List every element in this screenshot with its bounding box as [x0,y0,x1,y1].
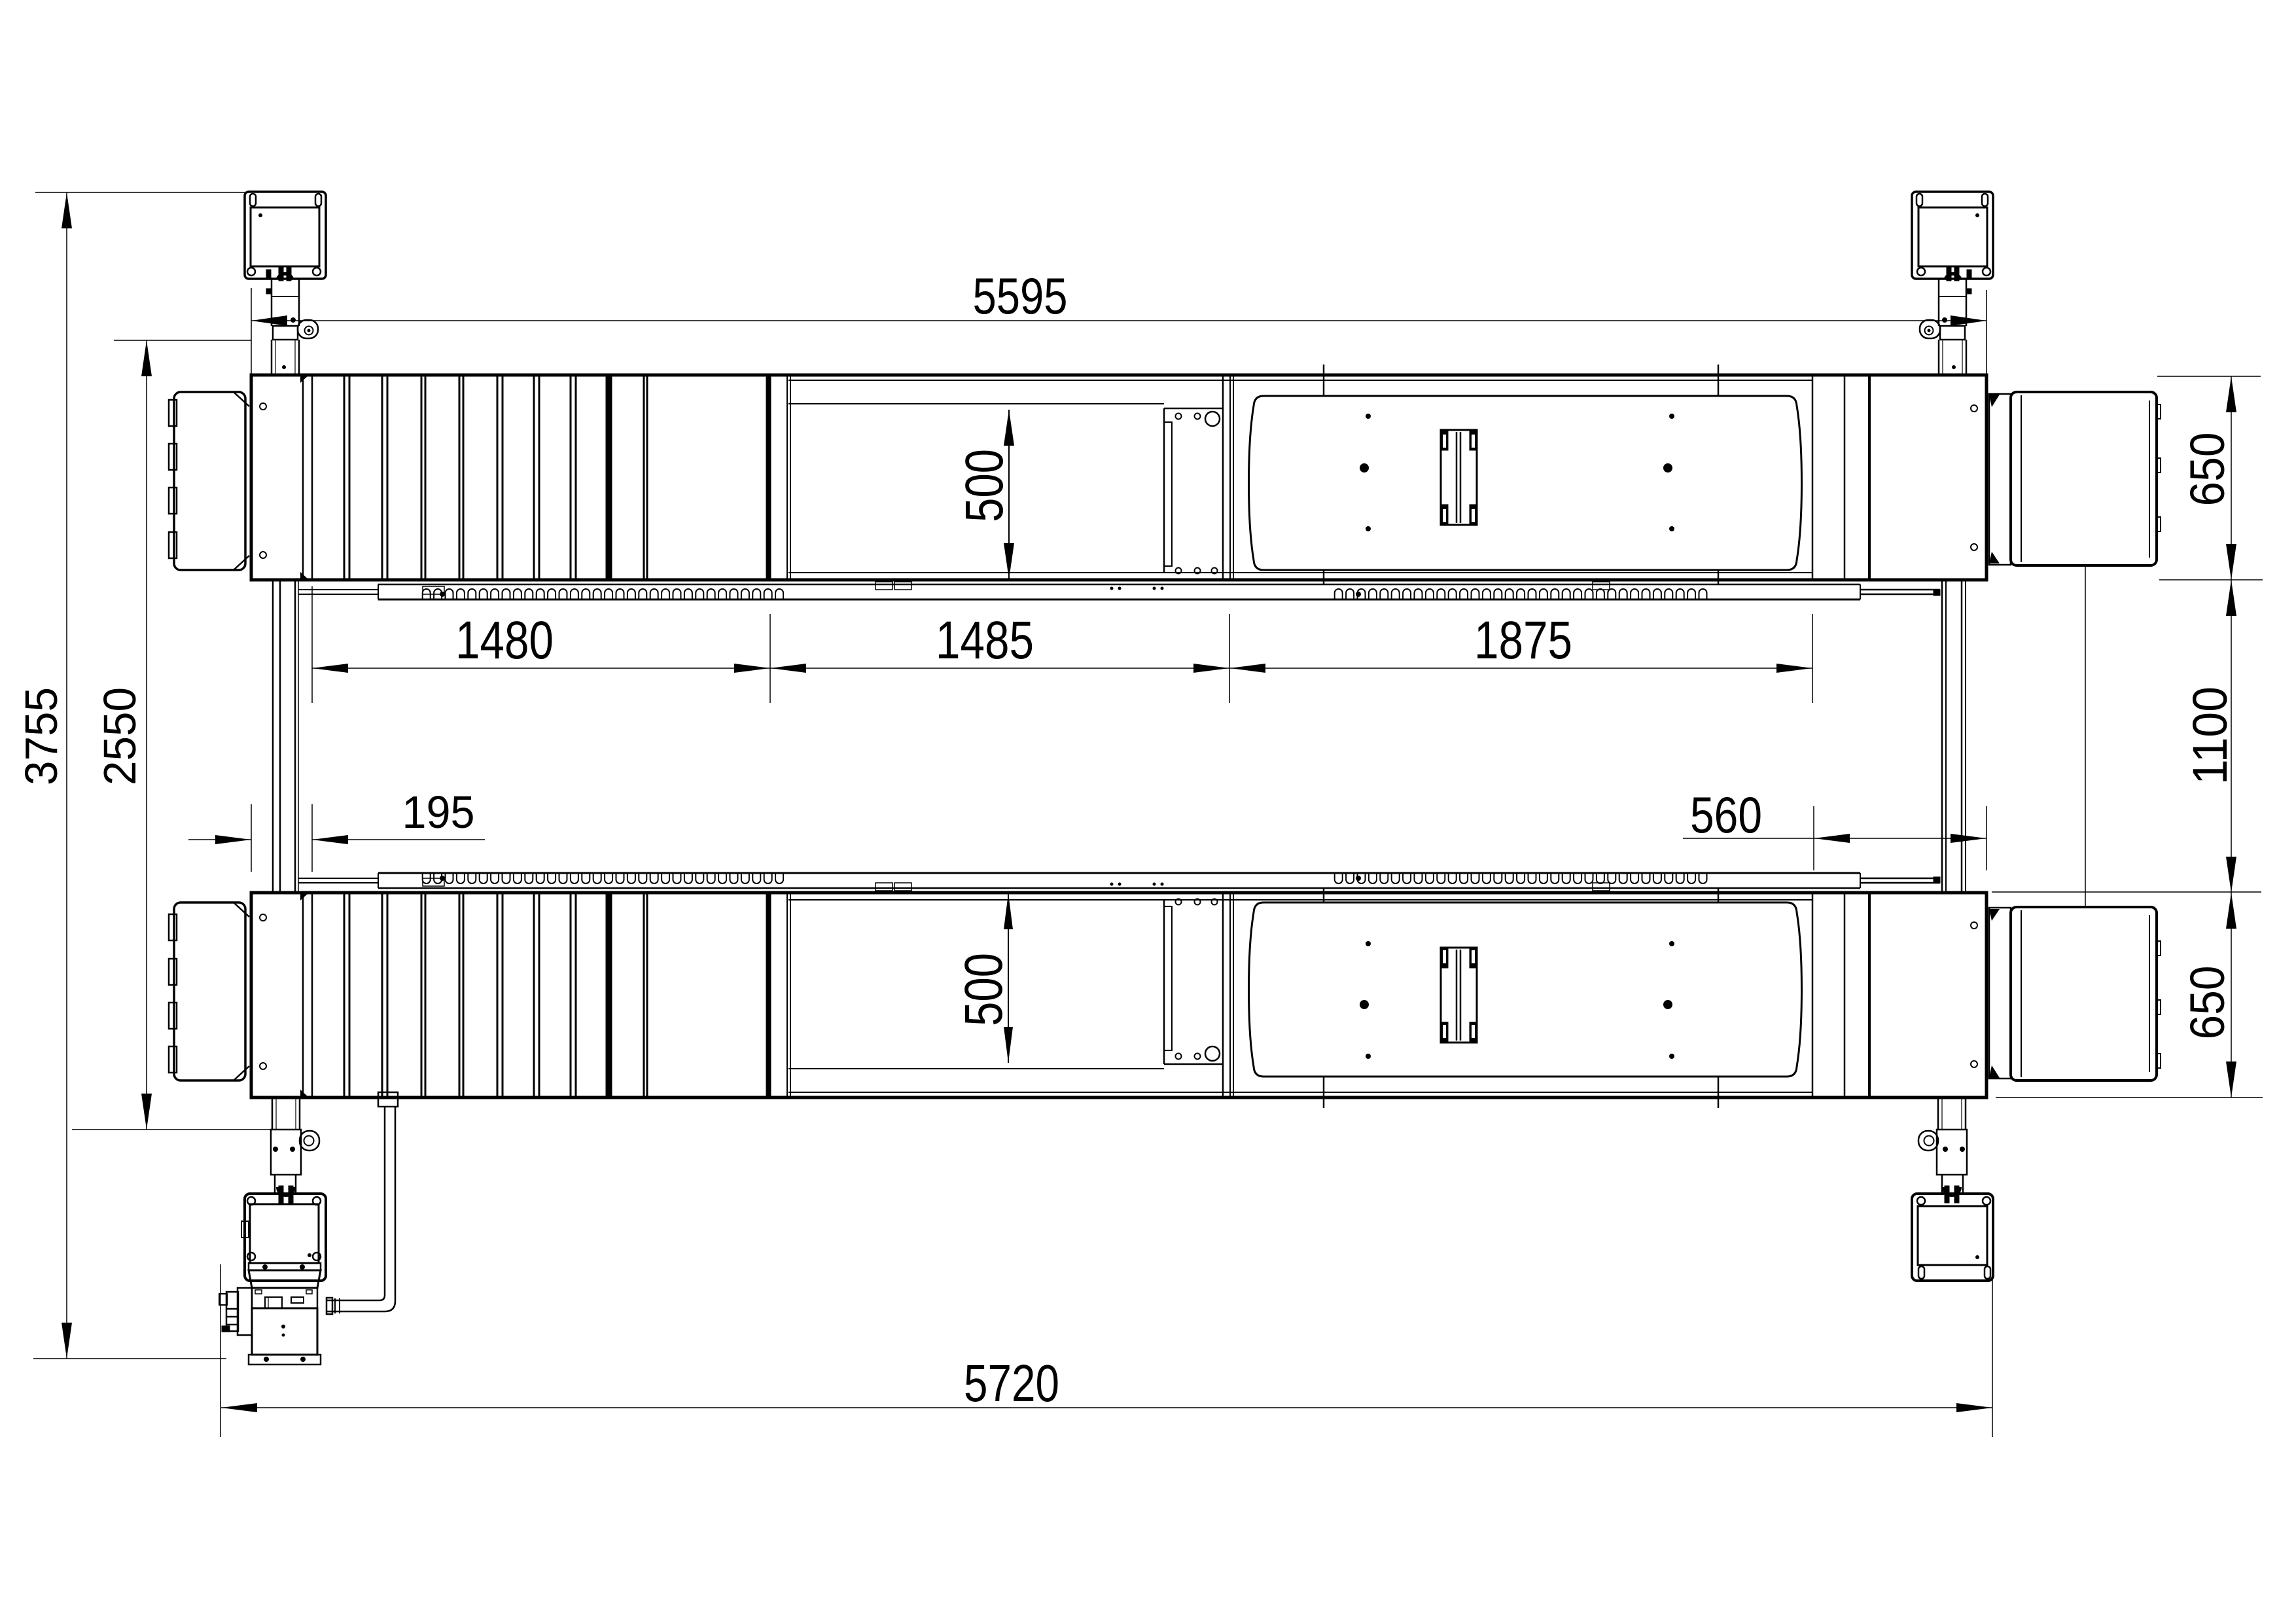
svg-text:1480: 1480 [455,611,554,670]
svg-text:650: 650 [2180,433,2234,507]
svg-text:2550: 2550 [94,687,145,785]
svg-text:500: 500 [954,953,1014,1026]
svg-text:1485: 1485 [936,611,1034,670]
svg-text:1875: 1875 [1474,611,1572,670]
svg-text:5720: 5720 [964,1354,1059,1412]
svg-text:560: 560 [1690,786,1762,844]
svg-text:1100: 1100 [2183,687,2237,785]
svg-text:5595: 5595 [973,267,1068,325]
svg-text:195: 195 [402,787,475,838]
svg-text:500: 500 [955,449,1014,522]
svg-text:3755: 3755 [16,687,67,785]
svg-text:650: 650 [2180,966,2234,1040]
